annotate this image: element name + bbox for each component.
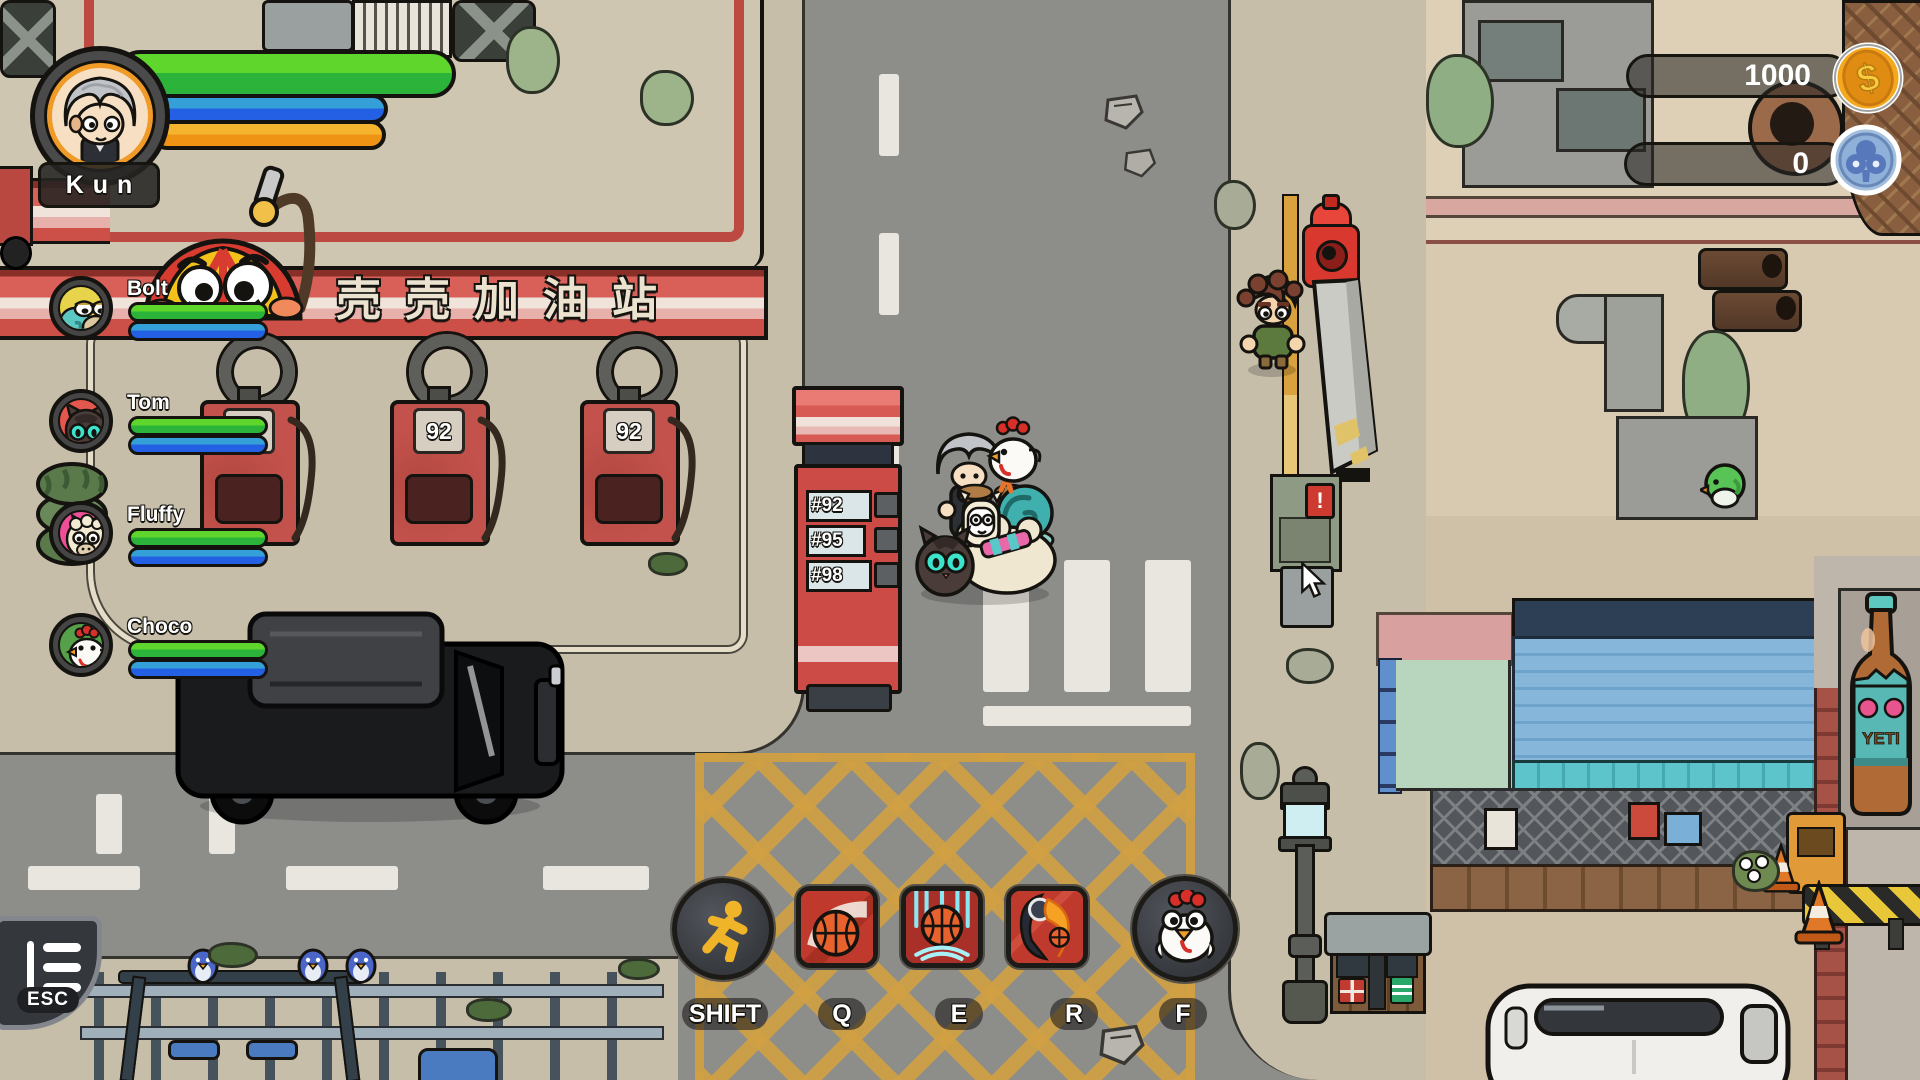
barrier-leg: [1888, 918, 1904, 950]
skill-f-button[interactable]: [1132, 876, 1238, 982]
kiosk-red-sign: [1338, 978, 1366, 1004]
pump-hose: [283, 414, 319, 544]
roof-fan: [0, 0, 56, 78]
lane-dash: [28, 866, 140, 890]
flaming-dunk-icon: [1011, 891, 1083, 963]
bottle-label-text: YETI: [1862, 729, 1900, 748]
fence-sign-blue: [1664, 812, 1702, 846]
pump-hose: [663, 414, 699, 544]
chicken-summon-icon: [1146, 890, 1224, 968]
bush: [1286, 648, 1334, 684]
pump-octane-label: 92: [426, 418, 452, 444]
flower: [1747, 869, 1761, 883]
building-trim: [1426, 196, 1920, 218]
fence-sign-red: [1628, 802, 1660, 840]
pipe-mouth: [1762, 254, 1782, 278]
price-row: #92: [806, 490, 872, 522]
player-stamina-bar: [152, 120, 386, 150]
grass-tuft: [466, 998, 512, 1022]
price-button: [874, 527, 900, 553]
r-key-label: R: [1050, 998, 1098, 1030]
pipe-mouth: [1776, 296, 1796, 320]
party-portrait: [58, 510, 104, 556]
stop-line: [983, 706, 1191, 726]
price-label: #95: [811, 528, 843, 554]
party-avatar-fluffy[interactable]: [49, 501, 113, 565]
party-portrait: [58, 398, 104, 444]
fluffy-portrait-art: [60, 512, 104, 556]
truck-fragment: [0, 166, 33, 246]
player-portrait-art: [52, 68, 148, 164]
party-avatar-choco[interactable]: [49, 613, 113, 677]
player-health-bar: [116, 50, 456, 98]
gold-currency-pill: 1000: [1626, 54, 1850, 98]
pump-screen: [405, 474, 473, 524]
litter-paper: [1102, 92, 1146, 132]
swing-seat: [246, 1040, 298, 1060]
penguin-bird: [296, 944, 330, 984]
pump-screen: [215, 474, 283, 524]
stop-mark: [96, 794, 122, 854]
bush: [1214, 180, 1256, 230]
grass-tuft: [618, 958, 660, 980]
warning-sign: !: [1305, 483, 1335, 519]
party-avatar-bolt[interactable]: [49, 276, 113, 340]
esc-label: ESC: [27, 989, 69, 1010]
lamp-joint: [1288, 934, 1322, 958]
sprint-icon: [690, 896, 756, 962]
lane-dash: [543, 866, 649, 890]
price-row: #95: [806, 525, 866, 557]
sprint-key-label: SHIFT: [682, 998, 768, 1030]
billboard-blade-sign: [1306, 276, 1384, 492]
party-portrait: [58, 622, 104, 668]
price-row: #98: [806, 560, 872, 592]
hydrant-nozzle-hole: [1322, 246, 1336, 260]
litter-paper: [1096, 1022, 1148, 1068]
key-text: Q: [832, 1000, 851, 1029]
pump-octane-label: 92: [616, 418, 642, 444]
e-key-label: E: [935, 998, 983, 1030]
skill-sprint-button[interactable]: [672, 878, 774, 980]
duct-vertical: [1604, 294, 1664, 412]
key-text: R: [1065, 1000, 1083, 1029]
truck-wheel: [0, 236, 32, 270]
mint-building-floor: [1396, 660, 1511, 791]
pump-octane-plate: 92: [603, 408, 655, 454]
party-mana-bar: [128, 659, 268, 679]
price-label: #92: [811, 493, 843, 519]
f-key-label: F: [1159, 998, 1207, 1030]
choco-portrait-art: [60, 624, 104, 668]
playground-fence-rail: [80, 984, 664, 998]
mouse-cursor: [1298, 562, 1328, 600]
green-bird: [1700, 458, 1748, 512]
price-button: [874, 562, 900, 588]
playground-fence-rail: [80, 1026, 664, 1040]
club-coin-icon: [1828, 122, 1904, 198]
wicker-dome: [1842, 0, 1920, 236]
tom-portrait-art: [60, 400, 104, 444]
white-car: [1484, 978, 1798, 1080]
party-member-name: Bolt: [127, 277, 168, 301]
fence-sign-white: [1484, 808, 1518, 850]
utility-box-panel: [1279, 517, 1331, 563]
player-name: Kun: [57, 171, 142, 199]
party-health-bar: [128, 640, 268, 660]
lane-dash: [286, 866, 398, 890]
bolt-portrait-art: [60, 287, 104, 331]
q-key-label: Q: [818, 998, 866, 1030]
swing-seat: [168, 1040, 220, 1060]
pot-hole: [1770, 102, 1814, 146]
player-character-group[interactable]: [905, 410, 1115, 610]
pump-screen: [595, 474, 663, 524]
grass-tuft: [208, 942, 258, 968]
flower-patch: [1732, 850, 1780, 892]
gold-amount: 1000: [1744, 59, 1811, 93]
party-avatar-tom[interactable]: [49, 389, 113, 453]
price-label: #98: [811, 563, 843, 589]
party-health-bar: [128, 416, 268, 436]
npc-pedestrian[interactable]: [1236, 264, 1308, 378]
pump-octane-plate: 92: [413, 408, 465, 454]
player-name-plate: Kun: [38, 162, 160, 208]
street-lamp: [1272, 766, 1332, 1026]
utility-box: !: [1270, 474, 1342, 572]
key-text: E: [951, 1000, 968, 1029]
pump-hose: [473, 414, 509, 544]
street-kiosk: [1324, 912, 1426, 1012]
key-text: SHIFT: [689, 1000, 761, 1029]
bush: [640, 70, 694, 126]
litter-paper: [1122, 146, 1158, 180]
penguin-bird: [344, 944, 378, 984]
player-avatar-portrait: [52, 68, 148, 164]
hydrant-cap: [1322, 194, 1340, 210]
lamp-base: [1282, 980, 1328, 1024]
gas-station-sign-text: 壳壳加油站: [336, 272, 736, 328]
skill-e-button[interactable]: [901, 886, 983, 968]
play-structure: [418, 1048, 498, 1080]
lane-dash: [879, 233, 899, 315]
kiosk-green-sign: [1390, 976, 1414, 1004]
grass-tuft: [648, 552, 688, 576]
price-post-base: [806, 684, 892, 712]
skill-q-button[interactable]: [796, 886, 878, 968]
price-post-stripe: [798, 646, 898, 662]
price-post-body: #92 #95 #98: [794, 464, 902, 694]
party-member-name: Fluffy: [127, 503, 184, 527]
party-mana-bar: [128, 547, 268, 567]
party-member-name: Tom: [127, 391, 170, 415]
crosswalk-stripe: [1145, 560, 1191, 692]
party-portrait: [58, 285, 104, 331]
roof-machine: [262, 0, 354, 52]
key-text: F: [1175, 1000, 1190, 1029]
skill-r-button[interactable]: [1006, 886, 1088, 968]
lamp-pole: [1295, 844, 1315, 990]
warning-mark: !: [1316, 488, 1323, 513]
fuel-pump: 92: [551, 334, 701, 564]
price-post-cap: [792, 386, 904, 446]
party-mana-bar: [128, 435, 268, 455]
party-mana-bar: [128, 321, 268, 341]
fuel-pump: 92: [361, 334, 511, 564]
flower: [1755, 855, 1769, 869]
traffic-cone: [1792, 880, 1846, 946]
club-amount: 0: [1792, 147, 1809, 181]
basketball-slam-icon: [906, 891, 978, 963]
bush: [506, 26, 560, 94]
party-health-bar: [128, 302, 268, 322]
party-health-bar: [128, 528, 268, 548]
game-viewport: 壳壳加油站 92 92: [0, 0, 1920, 1080]
storefront-siding: [1512, 636, 1820, 768]
esc-key-pill: ESC: [17, 987, 79, 1013]
beer-bottle-art: YETI: [1846, 592, 1916, 820]
basketball-shot-icon: [801, 891, 873, 963]
ac-unit: [1478, 20, 1564, 82]
party-member-name: Choco: [127, 615, 192, 639]
kiosk-roof: [1324, 912, 1432, 956]
lane-dash: [879, 74, 899, 156]
dollar-coin-icon: $: [1830, 40, 1906, 116]
club-currency-pill: 0: [1624, 142, 1848, 186]
bush: [1426, 54, 1494, 148]
fuel-price-post: #92 #95 #98: [792, 386, 904, 706]
machine-panel: [1797, 827, 1835, 857]
price-button: [874, 492, 900, 518]
ac-unit: [1556, 88, 1646, 152]
